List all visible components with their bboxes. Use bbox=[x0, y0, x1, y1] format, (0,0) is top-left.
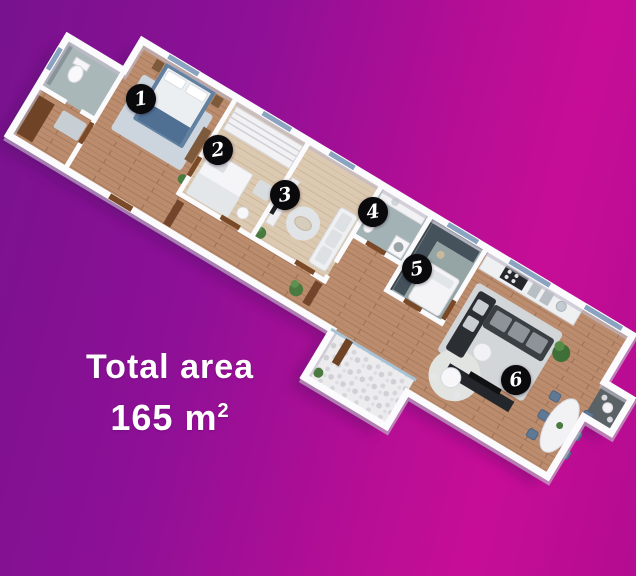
total-area-label: Total area bbox=[42, 348, 298, 387]
floorplan-3d-render bbox=[0, 0, 636, 576]
apartment-plan bbox=[0, 0, 636, 540]
total-area-value: 165 m2 bbox=[42, 397, 298, 439]
total-area-caption: Total area 165 m2 bbox=[42, 348, 298, 439]
square-superscript: 2 bbox=[217, 400, 229, 422]
floorplan-poster: 1 2 3 4 5 6 Total area 165 m2 bbox=[0, 0, 636, 576]
